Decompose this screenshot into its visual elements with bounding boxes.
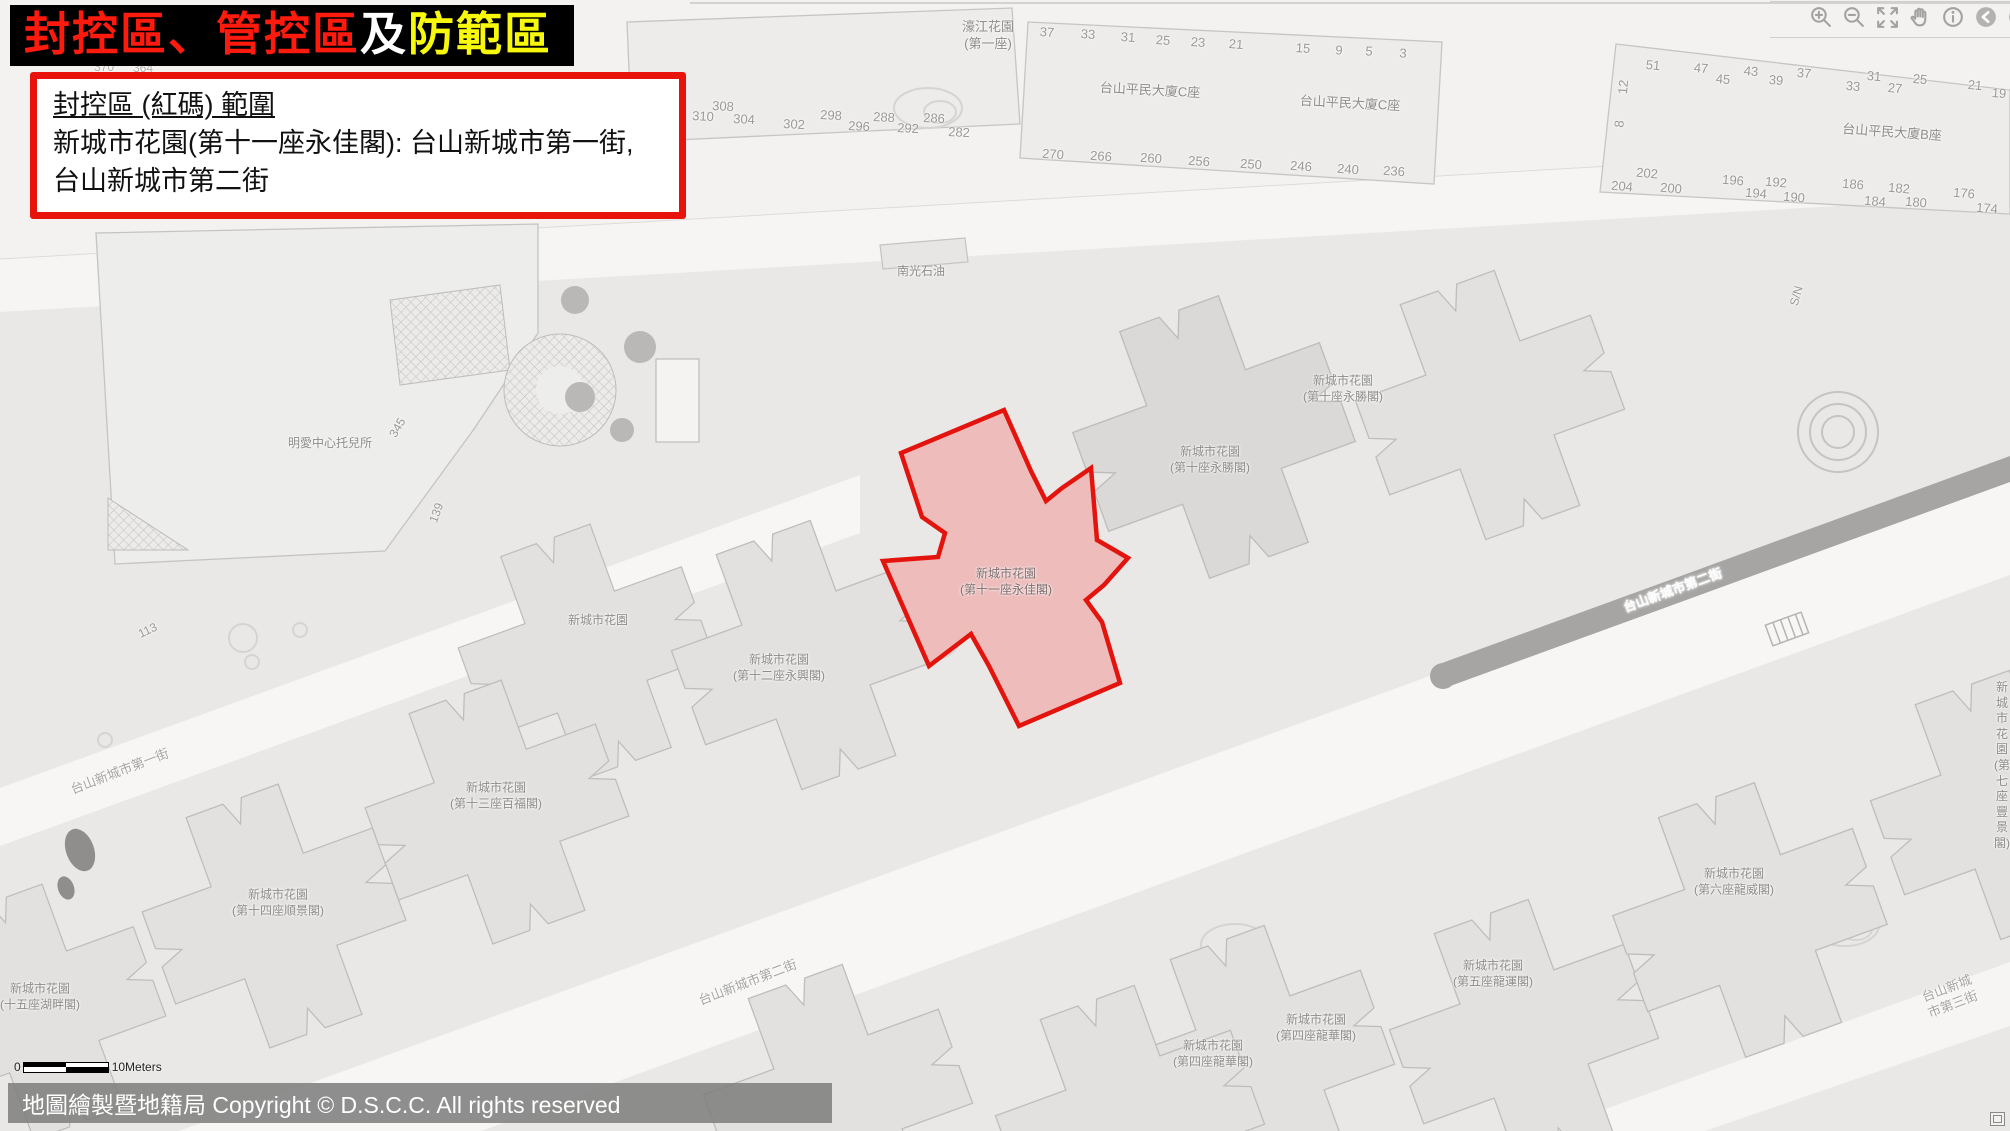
- lockdown-info-line2: 台山新城市第二街: [53, 163, 665, 201]
- next-extent-icon[interactable]: [2006, 4, 2010, 30]
- map-toolbar: [1808, 4, 2010, 30]
- banner-segment-1: 及: [360, 8, 408, 60]
- banner-segment-0: 封控區、管控區: [24, 8, 360, 60]
- resize-corner-widget[interactable]: [1990, 1112, 2005, 1126]
- lockdown-info-box: 封控區 (紅碼) 範圍 新城市花園(第十一座永佳閣): 台山新城市第一街, 台山…: [30, 72, 686, 219]
- previous-extent-icon[interactable]: [1973, 4, 1999, 30]
- map-viewport[interactable]: 濠江花園 (第一座)台山平民大廈C座台山平民大廈C座台山平民大廈B座南光石油明愛…: [0, 0, 2010, 1131]
- full-extent-icon[interactable]: [1874, 4, 1900, 30]
- attribution-bar: 地圖繪製暨地籍局 Copyright © D.S.C.C. All rights…: [8, 1083, 832, 1123]
- title-banner: 封控區、管控區及防範區: [10, 5, 574, 66]
- lockdown-info-line1: 新城市花園(第十一座永佳閣): 台山新城市第一街,: [53, 125, 665, 163]
- toolbar-separator-bottom: [1770, 37, 2010, 38]
- scale-bar-graphic: [23, 1062, 109, 1073]
- scale-distance-label: 10Meters: [112, 1060, 162, 1074]
- zoom-in-icon[interactable]: [1808, 4, 1834, 30]
- roundabout-arcs: [1798, 392, 1878, 472]
- banner-segment-2: 防範區: [408, 8, 552, 60]
- scale-bar: 0 10Meters: [14, 1060, 162, 1074]
- toolbar-separator-top: [1770, 1, 2010, 2]
- attribution-text: 地圖繪製暨地籍局 Copyright © D.S.C.C. All rights…: [22, 1086, 620, 1120]
- lockdown-info-heading: 封控區 (紅碼) 範圍: [53, 87, 665, 125]
- pan-icon[interactable]: [1907, 4, 1933, 30]
- zoom-out-icon[interactable]: [1841, 4, 1867, 30]
- dark-blobs: [54, 825, 100, 902]
- taishan-c-building: [1020, 22, 1442, 184]
- info-icon[interactable]: [1940, 4, 1966, 30]
- building-block-6: [1330, 245, 1650, 565]
- scale-zero-label: 0: [14, 1060, 21, 1074]
